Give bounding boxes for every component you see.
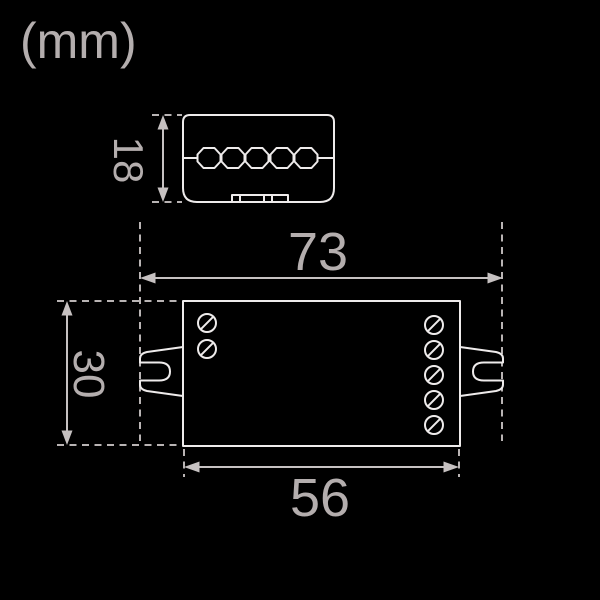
- dim-label-73: 73: [288, 222, 348, 282]
- terminal-knob: [222, 148, 245, 168]
- bottom-connector: [232, 195, 288, 202]
- terminal-knob: [246, 148, 269, 168]
- connector-dividers: [240, 195, 272, 202]
- terminal-knob: [271, 148, 294, 168]
- dimension-drawing: (mm) 18: [0, 0, 600, 600]
- terminal-knob: [198, 148, 221, 168]
- unit-label: (mm): [20, 13, 137, 69]
- mounting-tab-right: [460, 347, 503, 396]
- enclosure-body-outline: [183, 301, 460, 446]
- drawing-svg: (mm) 18: [0, 0, 600, 600]
- arrowhead-right-icon: [488, 273, 504, 284]
- arrowhead-left-icon: [140, 273, 156, 284]
- mounting-tab-left: [140, 347, 183, 396]
- side-view: 18: [105, 115, 334, 202]
- dim-label-56: 56: [290, 468, 350, 528]
- arrowhead-down-icon: [62, 431, 73, 446]
- arrowhead-left-icon: [184, 462, 200, 473]
- dim-label-30: 30: [64, 350, 113, 399]
- arrowhead-up-icon: [158, 115, 169, 130]
- arrowhead-up-icon: [62, 301, 73, 316]
- front-view: 73 30: [57, 222, 503, 528]
- dim-label-18: 18: [105, 137, 152, 184]
- arrowhead-down-icon: [158, 188, 169, 203]
- terminal-knob: [295, 148, 318, 168]
- arrowhead-right-icon: [444, 462, 460, 473]
